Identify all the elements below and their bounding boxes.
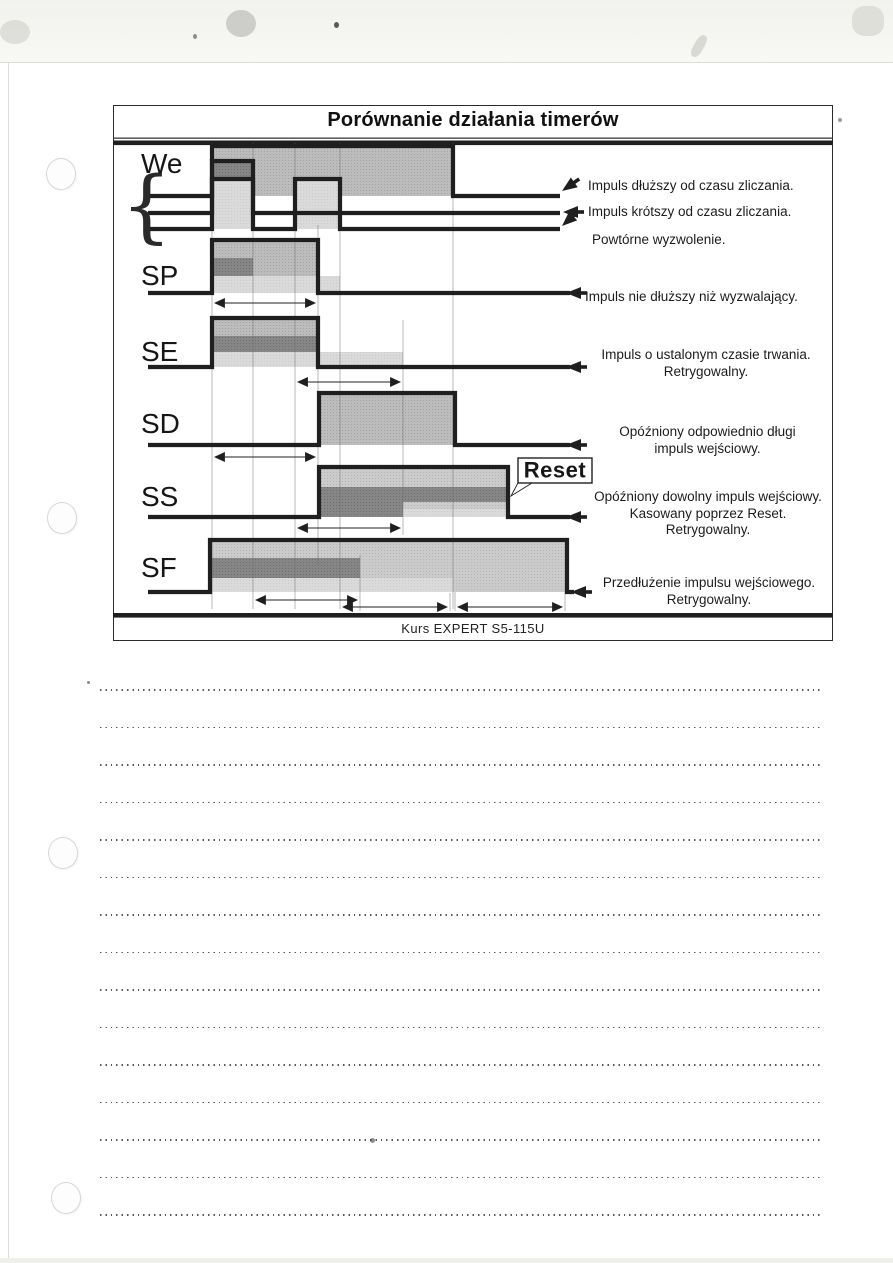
annotation-line: Opóźniony dowolny impuls wejściowy.: [578, 489, 838, 506]
annotation-line: Kasowany poprzez Reset.: [578, 506, 838, 523]
sp-waveform: [148, 240, 570, 293]
scan-speck: [334, 22, 339, 28]
annotation-ss: Opóźniony dowolny impuls wejściowy. Kaso…: [578, 489, 838, 539]
punch-hole: [51, 1182, 81, 1214]
se-retrigger-band: [212, 352, 403, 367]
scan-speck: [87, 681, 90, 684]
scan-speck: [838, 118, 842, 122]
signal-label-we: We: [141, 148, 183, 179]
note-line: [100, 1214, 822, 1216]
signal-label-sp: SP: [141, 260, 178, 291]
we-retrigger-band: [295, 181, 340, 229]
note-line: [100, 727, 822, 729]
sp-light-band: [212, 276, 340, 293]
note-line: [100, 952, 822, 954]
scan-speck: [193, 34, 197, 39]
se-dark-band: [212, 336, 318, 353]
annotation-line: Impuls o ustalonym czasie trwania.: [575, 347, 837, 364]
signal-label-sf: SF: [141, 552, 177, 583]
title-separator-thin: [113, 138, 833, 139]
left-arrow-icon: [559, 174, 583, 196]
note-line: [100, 764, 822, 766]
note-line: [100, 877, 822, 879]
annotation-line: Retrygowalny.: [580, 592, 838, 609]
page-edge: [0, 62, 893, 63]
sf-dark-band: [212, 558, 360, 578]
punch-hole: [47, 502, 77, 534]
ss-light-band: [403, 509, 508, 517]
signal-label-sd: SD: [141, 408, 180, 439]
note-line: [100, 1064, 822, 1066]
note-line: [100, 1139, 822, 1141]
note-line: [100, 689, 822, 691]
sf-light-band: [212, 578, 453, 592]
annotation-sp: Impuls nie dłuższy niż wyzwalający.: [585, 289, 835, 306]
scan-speck: [0, 20, 30, 44]
punch-hole: [46, 158, 76, 190]
note-line: [100, 802, 822, 804]
left-arrow-icon: [566, 287, 587, 299]
signal-label-ss: SS: [141, 481, 178, 512]
annotation-we-short: Impuls krótszy od czasu zliczania.: [588, 204, 838, 221]
reset-label: Reset: [524, 458, 587, 483]
page-edge: [8, 62, 9, 1263]
sp-dark-band: [212, 258, 253, 276]
annotation-line: Retrygowalny.: [575, 364, 837, 381]
annotation-line: Opóźniony odpowiednio długi: [585, 424, 830, 441]
scanned-page: Porównanie działania timerów Kurs EXPERT…: [0, 0, 893, 1263]
sd-pulse-fill: [319, 393, 455, 445]
scan-speck: [689, 33, 710, 59]
annotation-line: impuls wejściowy.: [585, 441, 830, 458]
ss-dark-band: [319, 487, 508, 502]
punch-hole: [48, 837, 78, 869]
annotation-se: Impuls o ustalonym czasie trwania. Retry…: [575, 347, 837, 380]
note-line: [100, 1102, 822, 1104]
annotation-line: Przedłużenie impulsu wejściowego.: [580, 575, 838, 592]
annotation-we-long: Impuls dłuższy od czasu zliczania.: [588, 178, 838, 195]
annotation-line: Retrygowalny.: [578, 522, 838, 539]
footer-separator: [113, 613, 833, 618]
we-trigger-band: [212, 180, 253, 229]
left-arrow-icon: [566, 439, 587, 451]
scan-strip: [0, 0, 893, 62]
scan-speck: [852, 6, 884, 36]
annotation-sd: Opóźniony odpowiednio długi impuls wejśc…: [585, 424, 830, 457]
scan-speck: [226, 10, 256, 37]
note-line: [100, 989, 822, 991]
annotation-sf: Przedłużenie impulsu wejściowego. Retryg…: [580, 575, 838, 608]
note-line: [100, 1177, 822, 1179]
page-edge: [0, 1258, 893, 1263]
note-line: [100, 839, 822, 841]
ss-dark-corner: [319, 502, 403, 517]
annotation-we-retrigger: Powtórne wyzwolenie.: [592, 232, 842, 249]
note-line: [100, 914, 822, 916]
note-line: [100, 1027, 822, 1029]
signal-label-se: SE: [141, 336, 178, 367]
